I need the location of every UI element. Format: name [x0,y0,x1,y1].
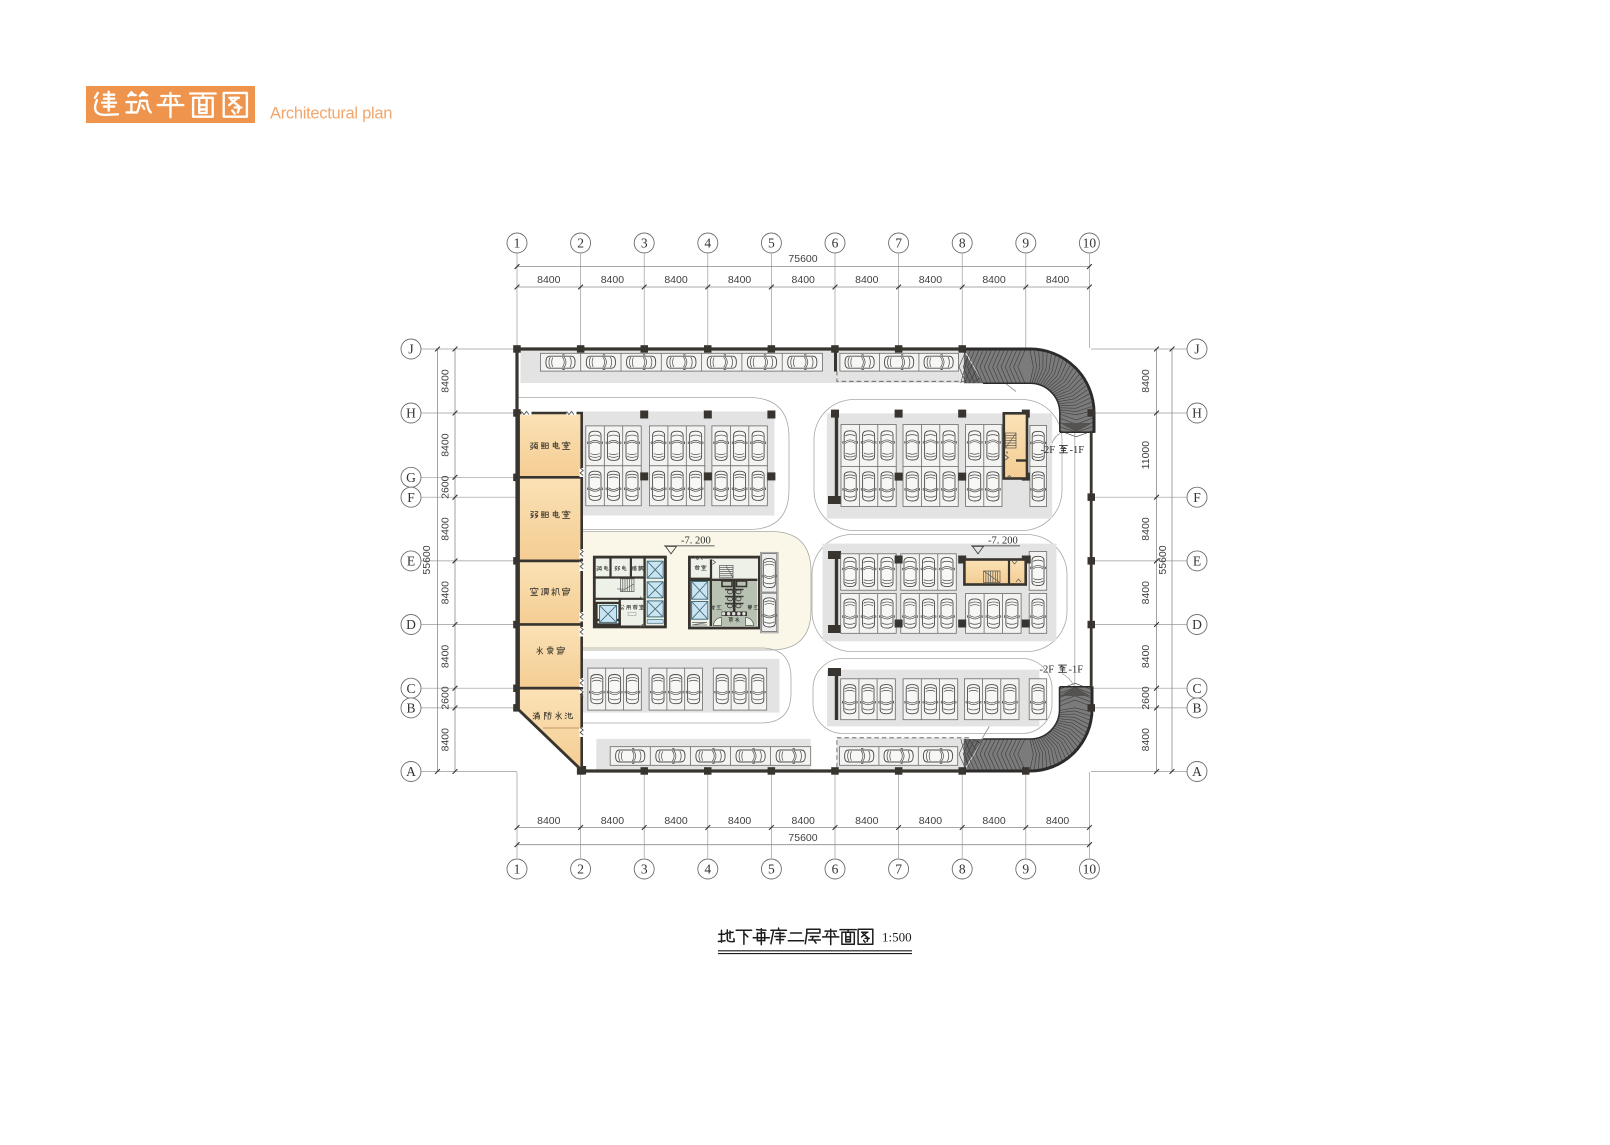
svg-text:8400: 8400 [728,815,752,827]
svg-text:8400: 8400 [440,728,452,752]
svg-text:-1F: -1F [1069,664,1084,675]
svg-text:75600: 75600 [788,253,817,265]
svg-text:D: D [1192,617,1202,632]
svg-text:J: J [1194,342,1199,357]
svg-text:10: 10 [1083,236,1097,251]
svg-text:55600: 55600 [421,545,433,574]
svg-text:2: 2 [577,862,584,877]
svg-text:10: 10 [1083,862,1097,877]
svg-text:2600: 2600 [440,686,452,710]
svg-text:H: H [1192,406,1202,421]
svg-text:C: C [406,681,415,696]
svg-text:-2F: -2F [1040,664,1055,675]
svg-text:9: 9 [1022,862,1029,877]
svg-text:E: E [1193,554,1201,569]
svg-text:7: 7 [895,862,902,877]
svg-text:2600: 2600 [1140,686,1152,710]
svg-text:8: 8 [959,236,966,251]
svg-text:8400: 8400 [537,274,561,286]
svg-text:8400: 8400 [1140,728,1152,752]
svg-text:-7. 200: -7. 200 [988,536,1018,547]
svg-text:8400: 8400 [440,645,452,669]
svg-text:8400: 8400 [1046,815,1070,827]
svg-text:8400: 8400 [1140,369,1152,393]
svg-text:F: F [407,490,415,505]
svg-text:Architectural plan: Architectural plan [270,105,392,123]
svg-text:F: F [1193,490,1201,505]
svg-text:8400: 8400 [601,815,625,827]
svg-text:B: B [1192,701,1201,716]
svg-text:8400: 8400 [1140,517,1152,541]
svg-text:-1F: -1F [1070,445,1085,456]
svg-text:D: D [406,617,416,632]
svg-text:6: 6 [832,236,839,251]
svg-text:J: J [408,342,413,357]
svg-text:8400: 8400 [440,517,452,541]
svg-text:8400: 8400 [537,815,561,827]
svg-text:A: A [406,764,416,779]
svg-text:G: G [406,470,416,485]
svg-text:8: 8 [959,862,966,877]
svg-text:8400: 8400 [728,274,752,286]
svg-text:4: 4 [704,236,711,251]
svg-text:8400: 8400 [855,815,879,827]
svg-text:3: 3 [641,236,648,251]
svg-text:1: 1 [514,862,521,877]
svg-text:3: 3 [641,862,648,877]
svg-text:5: 5 [768,862,775,877]
svg-text:8400: 8400 [919,274,943,286]
svg-text:5: 5 [768,236,775,251]
svg-text:A: A [1192,764,1202,779]
svg-text:1: 1 [514,236,521,251]
svg-text:6: 6 [832,862,839,877]
svg-text:7: 7 [895,236,902,251]
svg-text:55600: 55600 [1157,545,1169,574]
svg-text:-7. 200: -7. 200 [681,536,711,547]
svg-text:4: 4 [704,862,711,877]
svg-text:8400: 8400 [1046,274,1070,286]
svg-text:8400: 8400 [601,274,625,286]
svg-text:H: H [406,406,416,421]
svg-text:8400: 8400 [1140,645,1152,669]
svg-text:8400: 8400 [440,581,452,605]
svg-text:8400: 8400 [440,433,452,457]
svg-text:8400: 8400 [982,274,1006,286]
svg-text:8400: 8400 [664,815,688,827]
svg-text:8400: 8400 [664,274,688,286]
svg-text:8400: 8400 [792,815,816,827]
svg-text:2600: 2600 [440,475,452,499]
svg-text:11000: 11000 [1140,441,1152,470]
svg-text:1:500: 1:500 [882,930,912,945]
svg-text:8400: 8400 [855,274,879,286]
svg-text:E: E [407,554,415,569]
svg-text:8400: 8400 [792,274,816,286]
svg-text:9: 9 [1022,236,1029,251]
svg-text:C: C [1192,681,1201,696]
svg-text:8400: 8400 [919,815,943,827]
svg-text:75600: 75600 [788,832,817,844]
svg-text:8400: 8400 [1140,581,1152,605]
svg-text:8400: 8400 [440,369,452,393]
svg-text:2: 2 [577,236,584,251]
svg-text:B: B [406,701,415,716]
svg-text:8400: 8400 [982,815,1006,827]
svg-text:-2F: -2F [1041,445,1056,456]
